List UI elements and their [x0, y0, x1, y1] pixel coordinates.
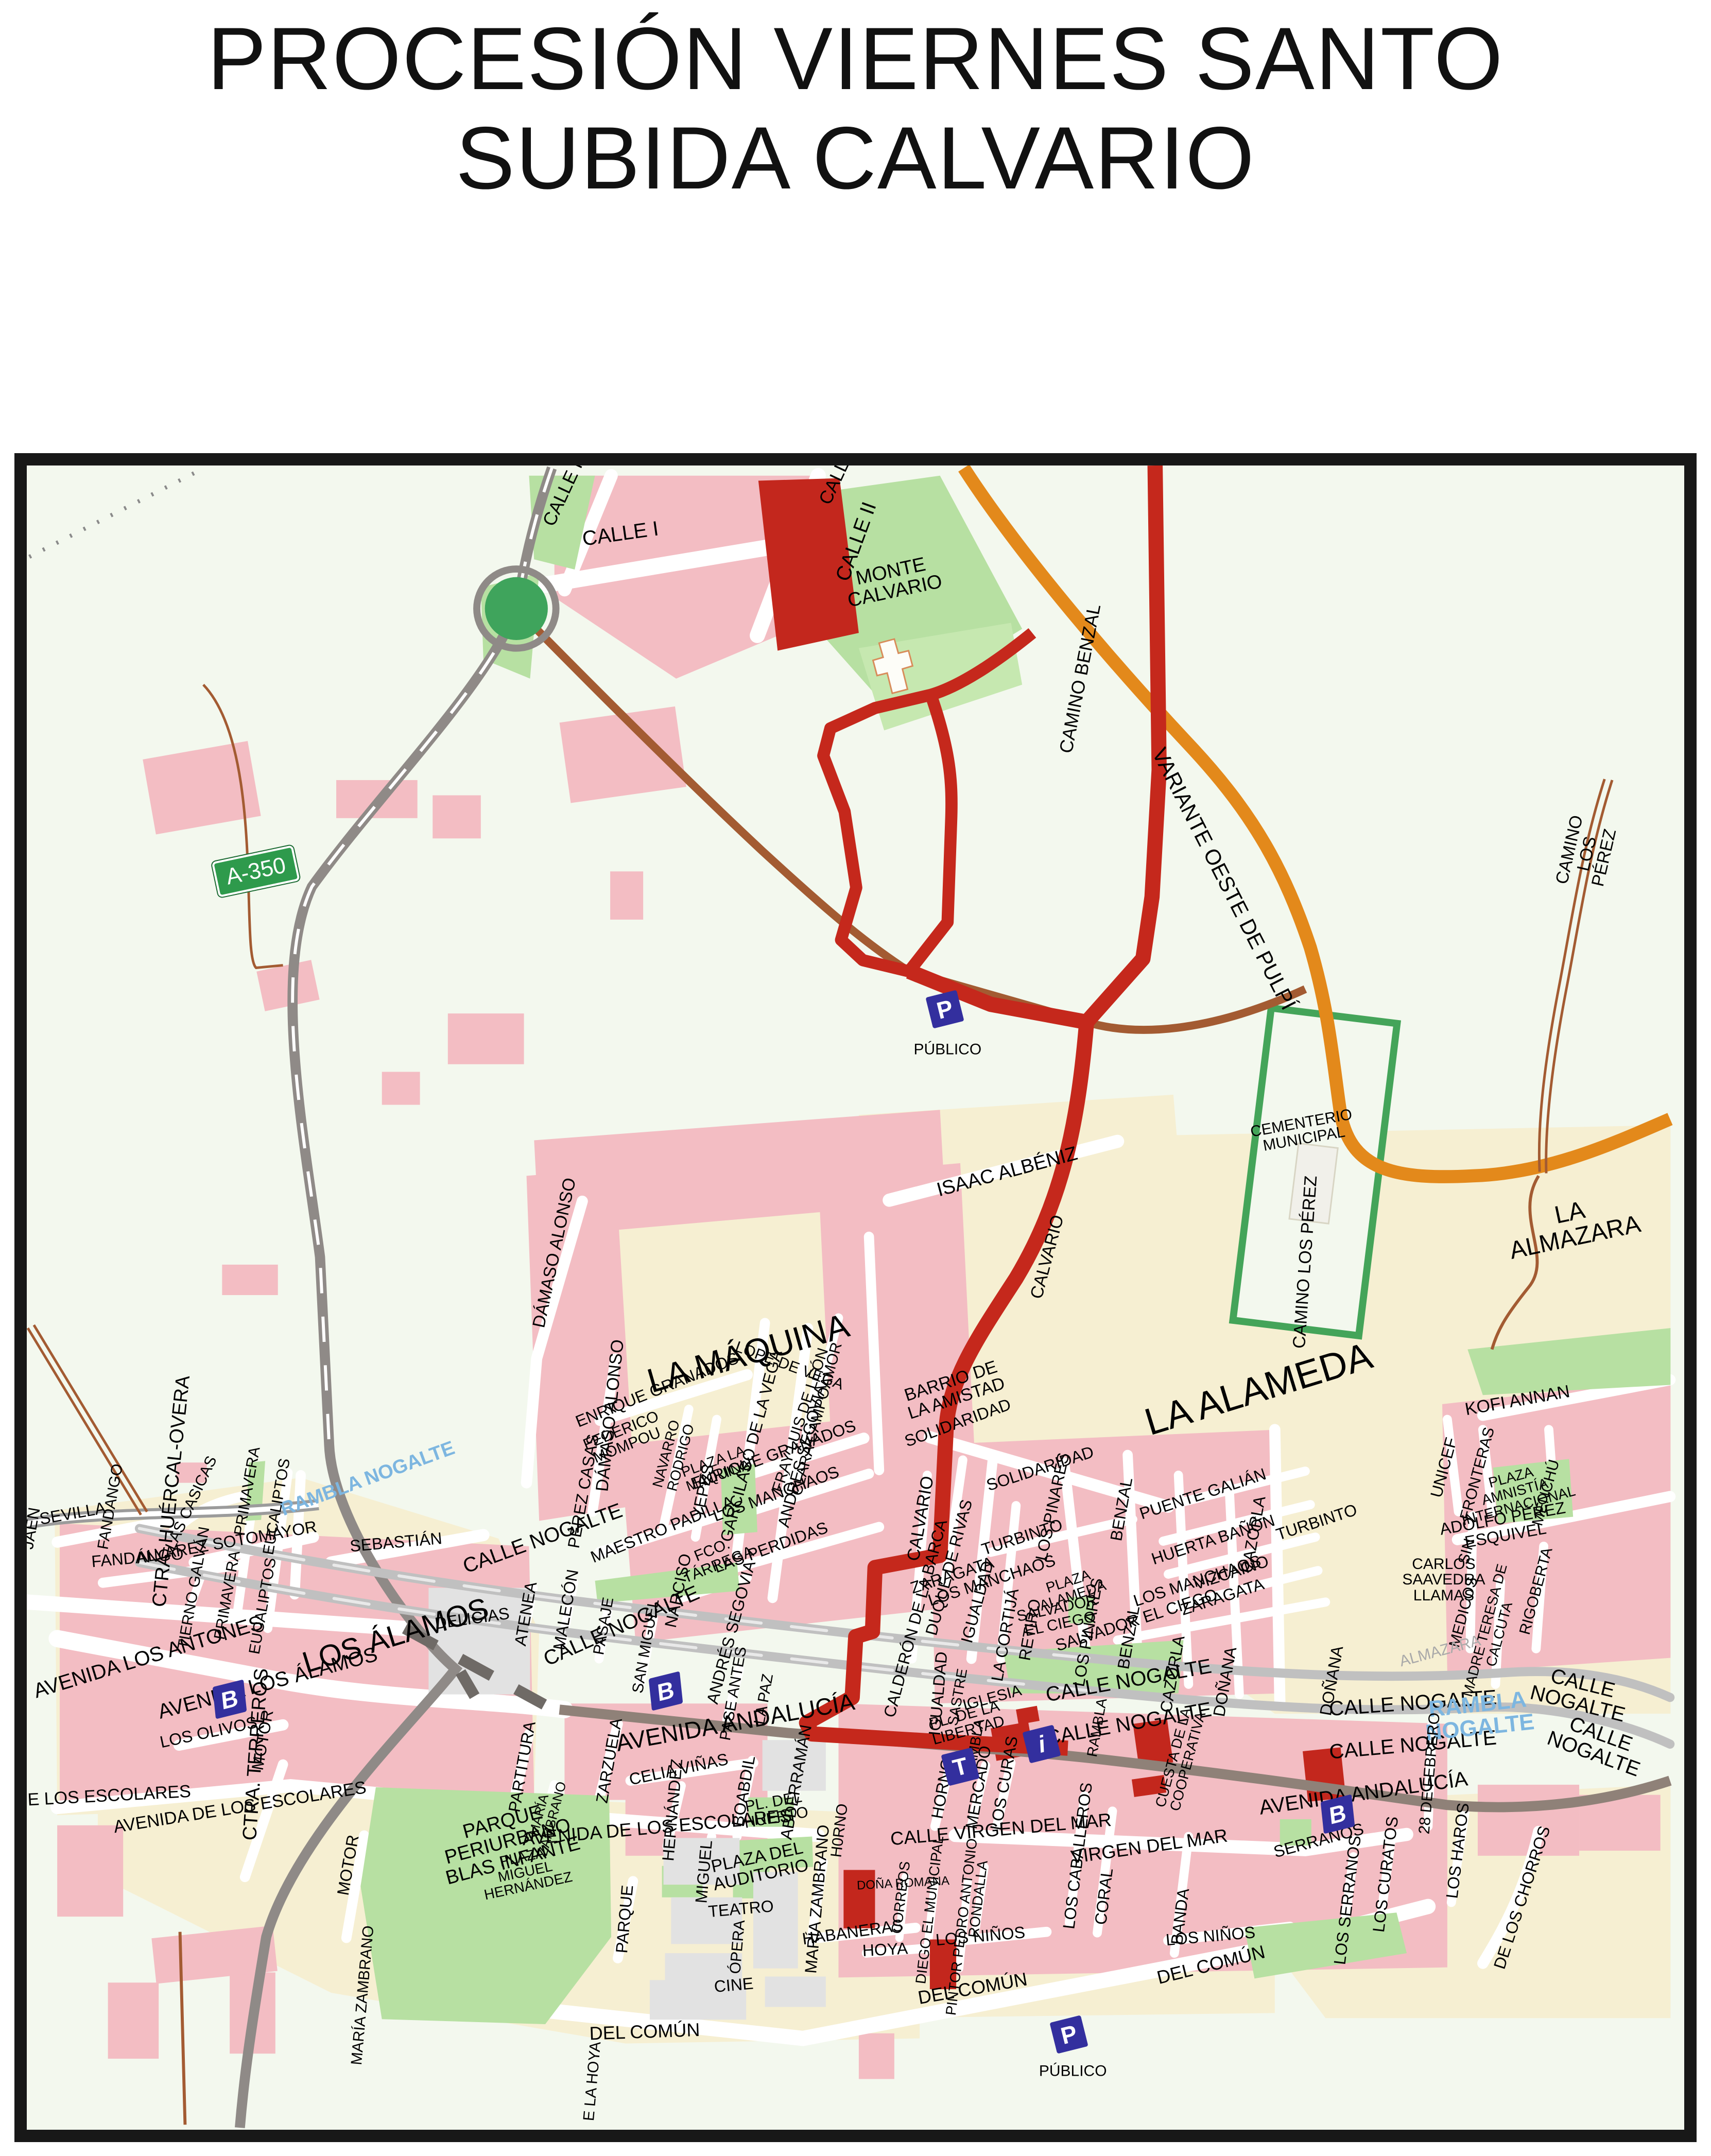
taxi-icon: T — [941, 1748, 979, 1786]
info-icon: i — [1022, 1725, 1061, 1764]
parking-icon: P — [926, 990, 964, 1029]
procession-map[interactable]: CALLE ICALLE IICALLE IVCALLEMONTE CALVAR… — [14, 453, 1697, 2142]
bus-icon: B — [649, 1671, 683, 1711]
bus-icon: B — [213, 1680, 247, 1719]
title-line-1: PROCESIÓN VIERNES SANTO — [0, 9, 1711, 109]
icons-layer: PPBBBiT — [27, 465, 1684, 2130]
page-title: PROCESIÓN VIERNES SANTO SUBIDA CALVARIO — [0, 9, 1711, 208]
bus-icon: B — [1321, 1794, 1355, 1834]
parking-icon: P — [1049, 2015, 1088, 2054]
title-line-2: SUBIDA CALVARIO — [0, 109, 1711, 208]
